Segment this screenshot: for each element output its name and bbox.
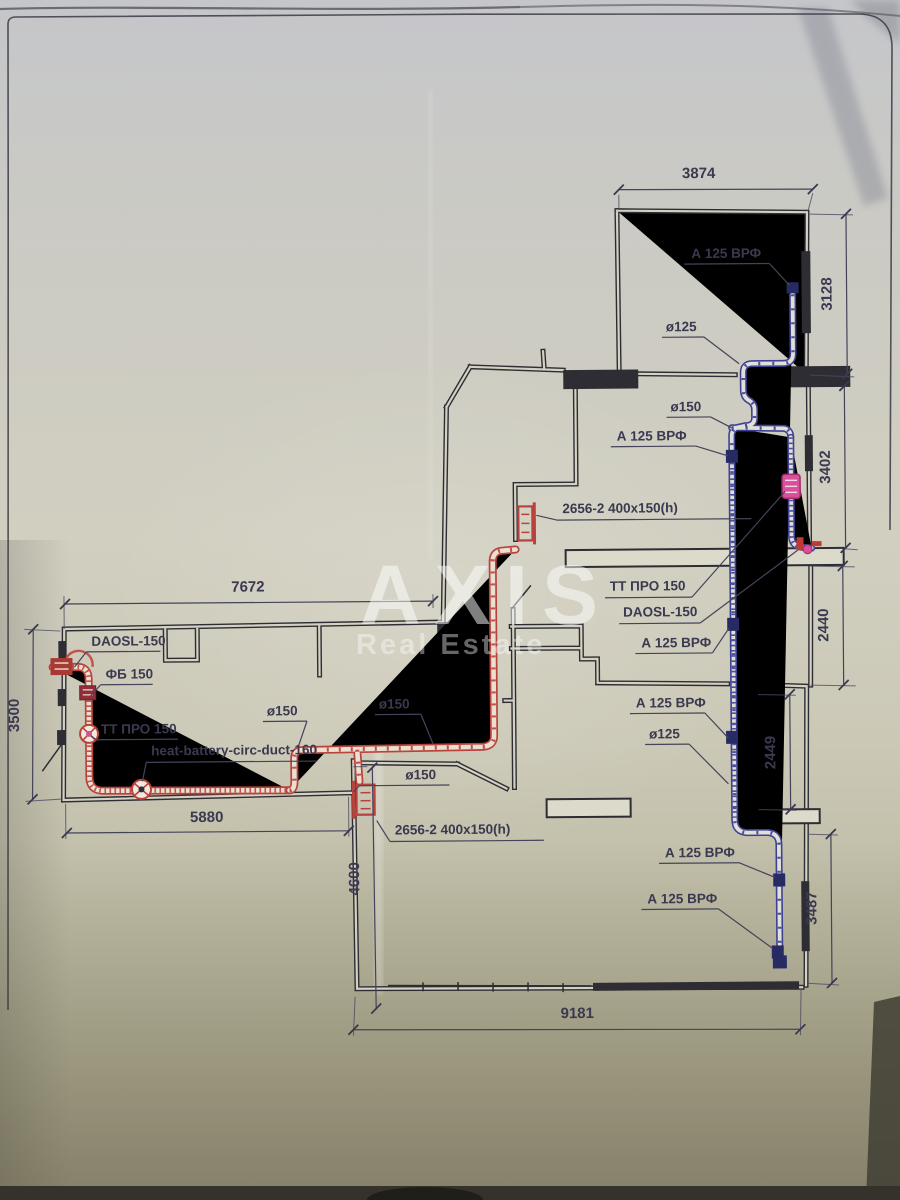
floor-plan-photo: 3874312834022440244934879181460058807672… [0,0,900,1200]
duct-o150-2-label: ø150 [405,767,436,782]
fitting-ttpro-left-label: ТТ ПРО 150 [101,721,177,737]
grille-a125-5-label: А 125 ВРФ [665,845,735,861]
fitting-fb-label: ФБ 150 [106,666,154,681]
watermark-subtitle: Real Estate [356,629,545,661]
grille-a125-3-label: А 125 ВРФ [641,635,711,651]
grille-2656-bottom-label: 2656-2 400x150(h) [395,822,511,838]
duct-o150-2-underline [359,785,449,786]
grille-a125-4-label: А 125 ВРФ [636,695,706,711]
dim-3500-text: 3500 [6,699,23,733]
duct-o150-3-label: ø150 [379,696,410,711]
duct-o150-1-label: ø150 [670,399,701,414]
fitting-daosl-left-underline [86,651,160,652]
dim-3402-text: 3402 [817,450,834,484]
heat-battery-fitting-symbol [132,780,151,799]
grille-a125-6-label: А 125 ВРФ [647,891,717,907]
watermark-title: AXIS [360,548,612,642]
tt-pro-right-symbol [782,474,800,498]
grille-a125-4-underline [630,713,705,714]
dim-3874-text: 3874 [682,165,716,182]
grille-a125-2-underline [611,446,696,447]
grille-a125-3-underline [635,653,712,654]
dim-3487-text: 3487 [803,891,820,925]
grille-a125-1-underline [684,263,769,264]
dim-9181-text: 9181 [560,1005,594,1022]
fitting-daosl-right-label: DAOSL-150 [623,604,697,620]
duct-heat-battery-label: heat-battery-circ-duct-160 [151,742,317,758]
duct-o150-4-label: ø150 [267,703,298,718]
fitting-ttpro-left-underline [96,739,178,740]
grille-a125-6-underline [641,909,718,910]
fitting-daosl-left-label: DAOSL-150 [91,633,165,649]
dim-2440-text: 2440 [815,608,832,642]
dim-5880-text: 5880 [190,809,224,826]
fitting-ttpro-right-label: ТТ ПРО 150 [610,578,686,594]
grille-2656-top-label: 2656-2 400x150(h) [562,500,678,516]
grille-a125-1-label: А 125 ВРФ [691,246,761,262]
dim-4600-text: 4600 [346,862,363,896]
dim-7672-text: 7672 [231,578,265,595]
dim-2449-text: 2449 [762,736,779,770]
dim-3128-text: 3128 [818,277,835,311]
fitting-ttpro-right-underline [605,597,692,598]
tt-pro-left-symbol [80,725,98,743]
duct-o125-2-label: ø125 [649,726,680,741]
fitting-daosl-right-underline [619,623,700,624]
grille-a125-2-label: А 125 ВРФ [617,428,687,444]
grille-a125-5-underline [659,863,739,864]
floor-plan-canvas: 3874312834022440244934879181460058807672… [0,0,900,1200]
duct-o125-1-label: ø125 [666,319,697,334]
